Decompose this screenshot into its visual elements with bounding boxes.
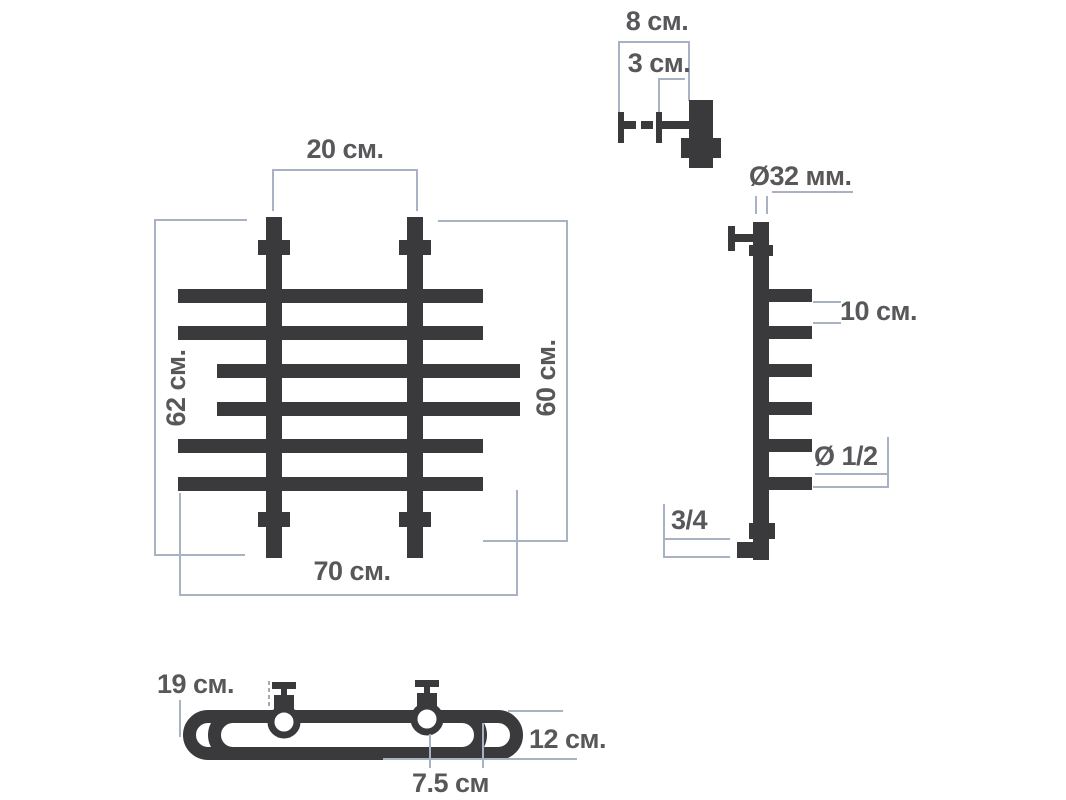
top-view-right-valve-handle bbox=[415, 680, 439, 687]
top-view-overhang-label: 7.5 см bbox=[412, 769, 489, 797]
top-view: 19 см. 12 см. 7.5 см bbox=[0, 0, 1066, 800]
top-view-left-valve-handle bbox=[272, 682, 296, 689]
top-view-left-offset-label: 19 см. bbox=[157, 670, 234, 698]
top-view-right-post-circle bbox=[414, 706, 440, 732]
top-view-loop-long-bars bbox=[215, 717, 517, 754]
top-view-overhang-ext-left bbox=[429, 734, 431, 768]
top-view-depth-label: 12 см. bbox=[529, 725, 606, 753]
towel-rail-dimension-diagram: 20 см. 62 см. 60 см. 70 см. bbox=[0, 0, 1066, 800]
top-view-depth-line-top bbox=[508, 710, 563, 712]
top-view-depth-line-bottom bbox=[383, 758, 577, 760]
top-view-left-post-circle bbox=[271, 709, 297, 735]
top-view-overhang-ext-right bbox=[482, 723, 484, 768]
top-view-left-offset-line bbox=[179, 700, 181, 737]
